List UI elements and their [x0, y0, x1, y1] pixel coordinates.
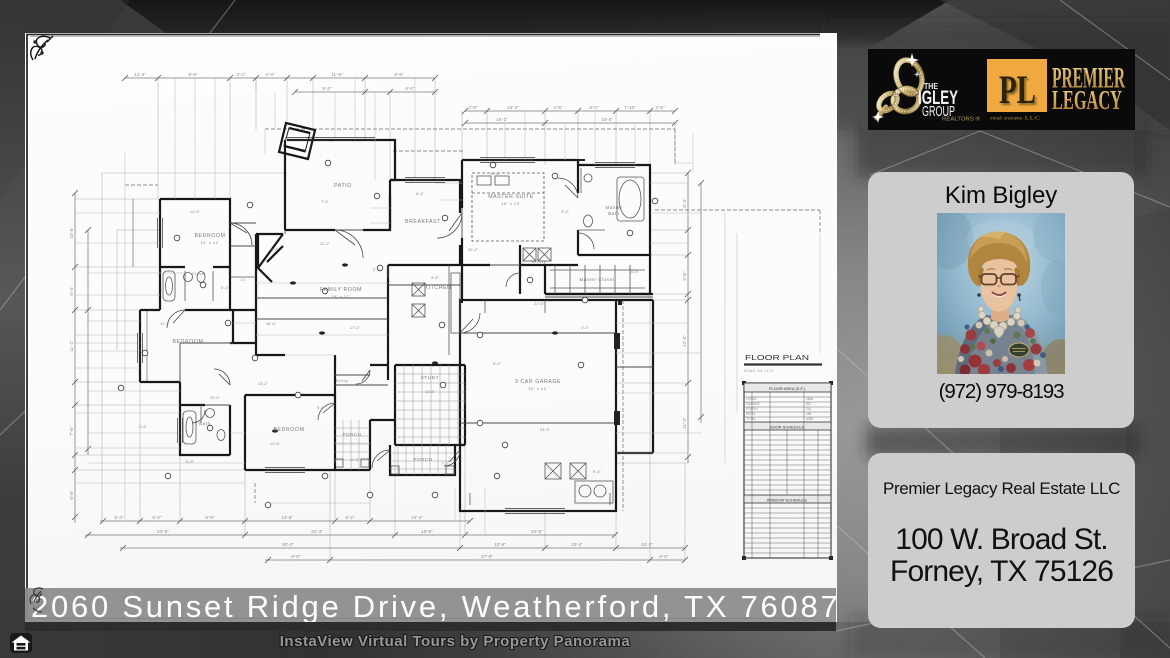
svg-text:PORCH: PORCH [746, 407, 758, 411]
svg-text:10'-0": 10'-0" [210, 395, 221, 400]
svg-text:GARAGE: GARAGE [746, 402, 760, 406]
svg-text:6'-2": 6'-2" [152, 515, 162, 520]
svg-text:BREAKFAST: BREAKFAST [405, 219, 441, 225]
svg-text:7'-2": 7'-2" [441, 461, 450, 466]
svg-text:7'-10": 7'-10" [624, 105, 636, 110]
svg-text:11'-4": 11'-4" [682, 417, 687, 429]
svg-text:10'-2": 10'-2" [468, 247, 479, 252]
svg-text:MASTER SUITE: MASTER SUITE [488, 194, 534, 200]
svg-text:2846: 2846 [806, 397, 813, 401]
svg-text:16'-8": 16'-8" [490, 171, 501, 176]
svg-text:4'-0": 4'-0" [265, 72, 275, 77]
svg-text:2'-8": 2'-8" [468, 105, 478, 110]
svg-text:19' x 17': 19' x 17' [331, 295, 350, 299]
svg-text:7'-0": 7'-0" [321, 199, 330, 204]
svg-text:TOTAL: TOTAL [746, 417, 756, 421]
svg-text:12'-0": 12'-0" [682, 335, 687, 347]
svg-text:8'-6": 8'-6" [394, 72, 404, 77]
svg-text:PORCH: PORCH [414, 457, 433, 462]
svg-text:15'-4": 15'-4" [601, 117, 613, 122]
svg-text:5'-2": 5'-2" [345, 515, 355, 520]
svg-text:Entry: Entry [336, 378, 348, 383]
svg-text:STUDY: STUDY [421, 375, 440, 380]
svg-text:9'-8": 9'-8" [205, 515, 215, 520]
svg-text:6'-6": 6'-6" [631, 269, 640, 274]
svg-text:9'-8": 9'-8" [431, 275, 440, 280]
svg-text:8'-4": 8'-4" [416, 191, 425, 196]
svg-text:6'-8": 6'-8" [69, 490, 74, 500]
svg-text:13'-4": 13'-4" [507, 105, 519, 110]
svg-text:FLOOR AREA (S.F.): FLOOR AREA (S.F.) [769, 386, 806, 391]
svg-text:18'-2": 18'-2" [496, 117, 508, 122]
svg-text:13'-6": 13'-6" [281, 515, 293, 520]
svg-text:FLOOR PLAN: FLOOR PLAN [745, 353, 809, 362]
svg-text:10'-6": 10'-6" [69, 227, 74, 239]
svg-text:FAMILY ROOM: FAMILY ROOM [320, 287, 362, 293]
svg-text:LIVING: LIVING [746, 397, 757, 401]
svg-text:14'-6": 14'-6" [190, 209, 201, 214]
svg-text:8'-8": 8'-8" [186, 459, 195, 464]
svg-text:DOOR SCHEDULE: DOOR SCHEDULE [770, 425, 805, 430]
svg-text:9'-6": 9'-6" [188, 72, 198, 77]
svg-text:KITCHEN: KITCHEN [425, 285, 452, 291]
svg-text:11'-2": 11'-2" [69, 340, 74, 352]
svg-text:7'-6": 7'-6" [69, 426, 74, 436]
svg-text:Utility: Utility [532, 259, 547, 264]
svg-text:Cl: Cl [241, 278, 246, 282]
svg-text:REALTORS ®: REALTORS ® [942, 116, 980, 123]
svg-text:22'-0": 22'-0" [531, 529, 543, 534]
svg-text:23'-8": 23'-8" [157, 529, 169, 534]
svg-text:3'-2": 3'-2" [561, 209, 570, 214]
svg-text:6'-1": 6'-1" [221, 285, 230, 290]
svg-text:9'-4": 9'-4" [593, 469, 602, 474]
svg-text:7'-6": 7'-6" [631, 175, 640, 180]
svg-text:PATIO: PATIO [746, 412, 756, 416]
svg-text:3 CAR GARAGE: 3 CAR GARAGE [515, 379, 561, 385]
svg-text:PATIO: PATIO [334, 183, 352, 189]
svg-text:5'-6": 5'-6" [317, 405, 326, 410]
svg-text:Closet: Closet [192, 272, 206, 276]
svg-text:21'-6": 21'-6" [534, 301, 545, 306]
svg-text:4'-2": 4'-2" [581, 325, 590, 330]
svg-text:6'-4": 6'-4" [351, 457, 360, 462]
svg-text:50'-2": 50'-2" [282, 542, 294, 547]
svg-text:Master: Master [605, 205, 622, 210]
svg-text:11'-8": 11'-8" [331, 72, 343, 77]
svg-text:2'-8": 2'-8" [373, 267, 382, 272]
svg-text:BEDROOM: BEDROOM [273, 427, 304, 433]
svg-text:47'-6": 47'-6" [481, 554, 493, 559]
svg-text:PL: PL [999, 67, 1036, 112]
svg-text:12'-4": 12'-4" [134, 72, 146, 77]
svg-text:WINDOW SCHEDULE: WINDOW SCHEDULE [767, 498, 808, 503]
svg-text:812: 812 [806, 402, 812, 406]
svg-text:Bath: Bath [608, 211, 619, 216]
svg-text:22'-4": 22'-4" [311, 529, 323, 534]
svg-text:5'-4": 5'-4" [114, 515, 124, 520]
svg-text:12'-6": 12'-6" [270, 441, 281, 446]
svg-text:186: 186 [806, 412, 812, 416]
svg-text:Bath: Bath [199, 421, 210, 426]
svg-text:13'-2": 13'-2" [258, 381, 269, 386]
svg-text:5'-0": 5'-0" [659, 554, 669, 559]
svg-text:8'-4": 8'-4" [682, 198, 687, 208]
svg-text:12'-2": 12'-2" [320, 241, 331, 246]
svg-text:4'-6": 4'-6" [139, 424, 148, 429]
svg-text:PORCH: PORCH [343, 432, 362, 437]
svg-text:10'-2": 10'-2" [641, 542, 653, 547]
svg-text:214: 214 [806, 407, 812, 411]
svg-text:10'-4": 10'-4" [411, 515, 423, 520]
svg-text:9'-0": 9'-0" [291, 554, 301, 559]
svg-text:32' x 21': 32' x 21' [528, 387, 547, 391]
svg-text:4'-6": 4'-6" [553, 105, 563, 110]
svg-text:6'-4": 6'-4" [69, 286, 74, 296]
svg-text:3'-0": 3'-0" [493, 361, 502, 366]
svg-text:BEDROOM: BEDROOM [172, 339, 203, 345]
svg-text:10'-4": 10'-4" [571, 542, 583, 547]
svg-text:16' x 14': 16' x 14' [501, 202, 520, 206]
svg-text:11'-8": 11'-8" [425, 389, 435, 394]
svg-text:9'-2": 9'-2" [322, 86, 332, 91]
svg-text:8'-0": 8'-0" [589, 105, 599, 110]
svg-text:Master Closet: Master Closet [580, 277, 615, 282]
svg-text:18'-4": 18'-4" [266, 321, 277, 326]
svg-text:3'-6": 3'-6" [655, 105, 665, 110]
svg-text:3'-2": 3'-2" [236, 72, 246, 77]
svg-text:10'-6": 10'-6" [421, 529, 433, 534]
svg-text:12'-8": 12'-8" [494, 542, 506, 547]
svg-text:23'-4": 23'-4" [540, 427, 551, 432]
svg-text:SCALE: 1/4" = 1'-0": SCALE: 1/4" = 1'-0" [744, 369, 774, 373]
svg-text:12' x 11': 12' x 11' [200, 241, 219, 245]
svg-text:5'-0": 5'-0" [271, 247, 280, 252]
svg-text:real estate LLC: real estate LLC [990, 116, 1040, 122]
svg-text:4058: 4058 [806, 417, 813, 421]
svg-text:11'-3": 11'-3" [160, 321, 170, 326]
svg-text:6'-0": 6'-0" [405, 86, 415, 91]
svg-text:5'-6": 5'-6" [682, 271, 687, 281]
svg-text:LEGACY: LEGACY [1052, 84, 1122, 115]
svg-text:BEDROOM: BEDROOM [194, 233, 225, 239]
svg-text:17'-0": 17'-0" [350, 325, 361, 330]
